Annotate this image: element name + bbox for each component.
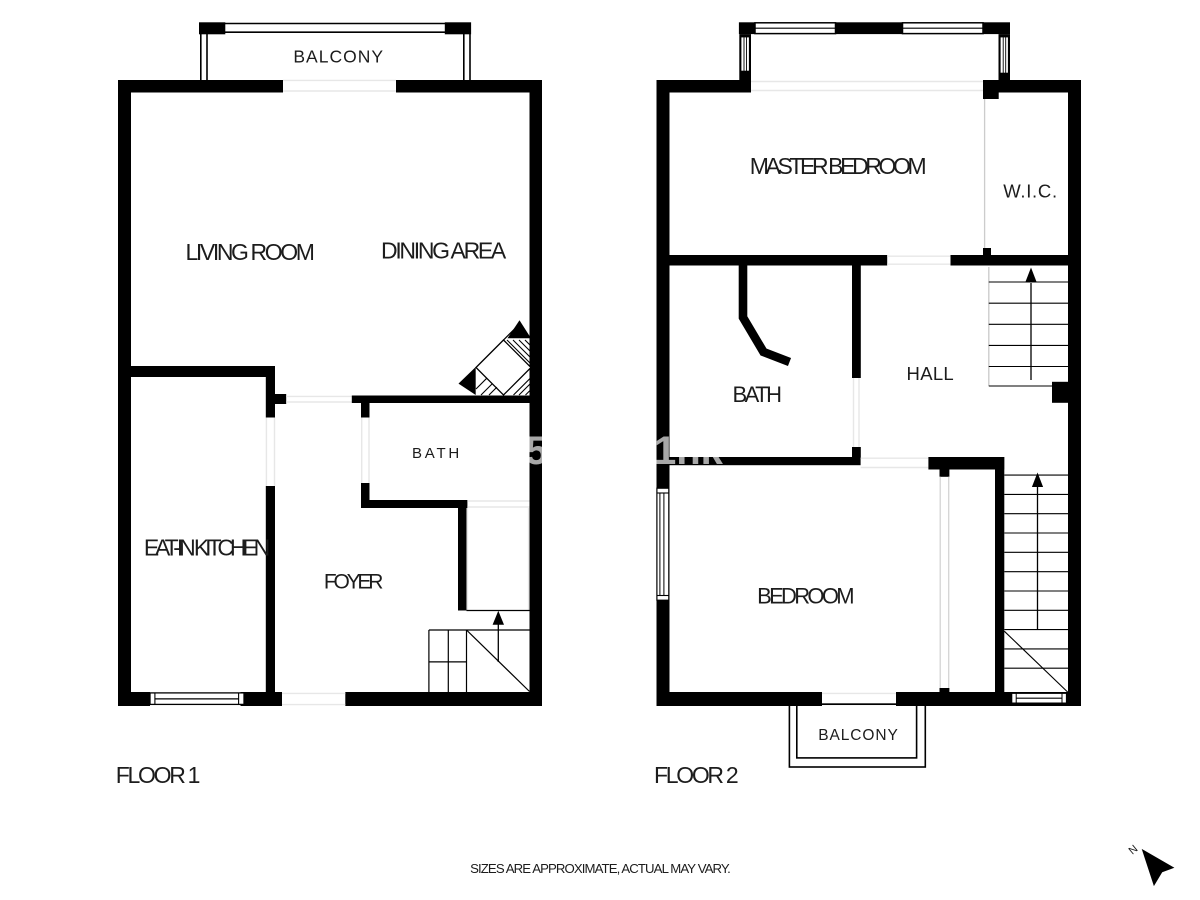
svg-text:BATH: BATH bbox=[732, 382, 781, 407]
svg-text:LIVING ROOM: LIVING ROOM bbox=[186, 239, 314, 265]
svg-text:FLOOR 2: FLOOR 2 bbox=[654, 762, 738, 788]
svg-text:FOYER: FOYER bbox=[324, 570, 383, 593]
svg-text:1nk: 1nk bbox=[654, 429, 724, 473]
svg-text:SIZES ARE APPROXIMATE, ACTUAL: SIZES ARE APPROXIMATE, ACTUAL MAY VARY. bbox=[470, 861, 730, 876]
svg-text:EAT-IN KITCHEN: EAT-IN KITCHEN bbox=[144, 534, 269, 560]
svg-text:BATH: BATH bbox=[412, 445, 462, 462]
svg-text:DINING AREA: DINING AREA bbox=[381, 237, 507, 263]
svg-text:HALL: HALL bbox=[907, 363, 954, 384]
svg-text:W.I.C.: W.I.C. bbox=[1003, 180, 1058, 201]
svg-text:BALCONY: BALCONY bbox=[293, 47, 384, 67]
svg-text:BEDROOM: BEDROOM bbox=[757, 584, 853, 609]
svg-text:5: 5 bbox=[525, 429, 547, 473]
svg-text:FLOOR 1: FLOOR 1 bbox=[116, 762, 200, 788]
svg-text:MASTER BEDROOM: MASTER BEDROOM bbox=[750, 153, 926, 179]
svg-text:BALCONY: BALCONY bbox=[818, 727, 898, 744]
